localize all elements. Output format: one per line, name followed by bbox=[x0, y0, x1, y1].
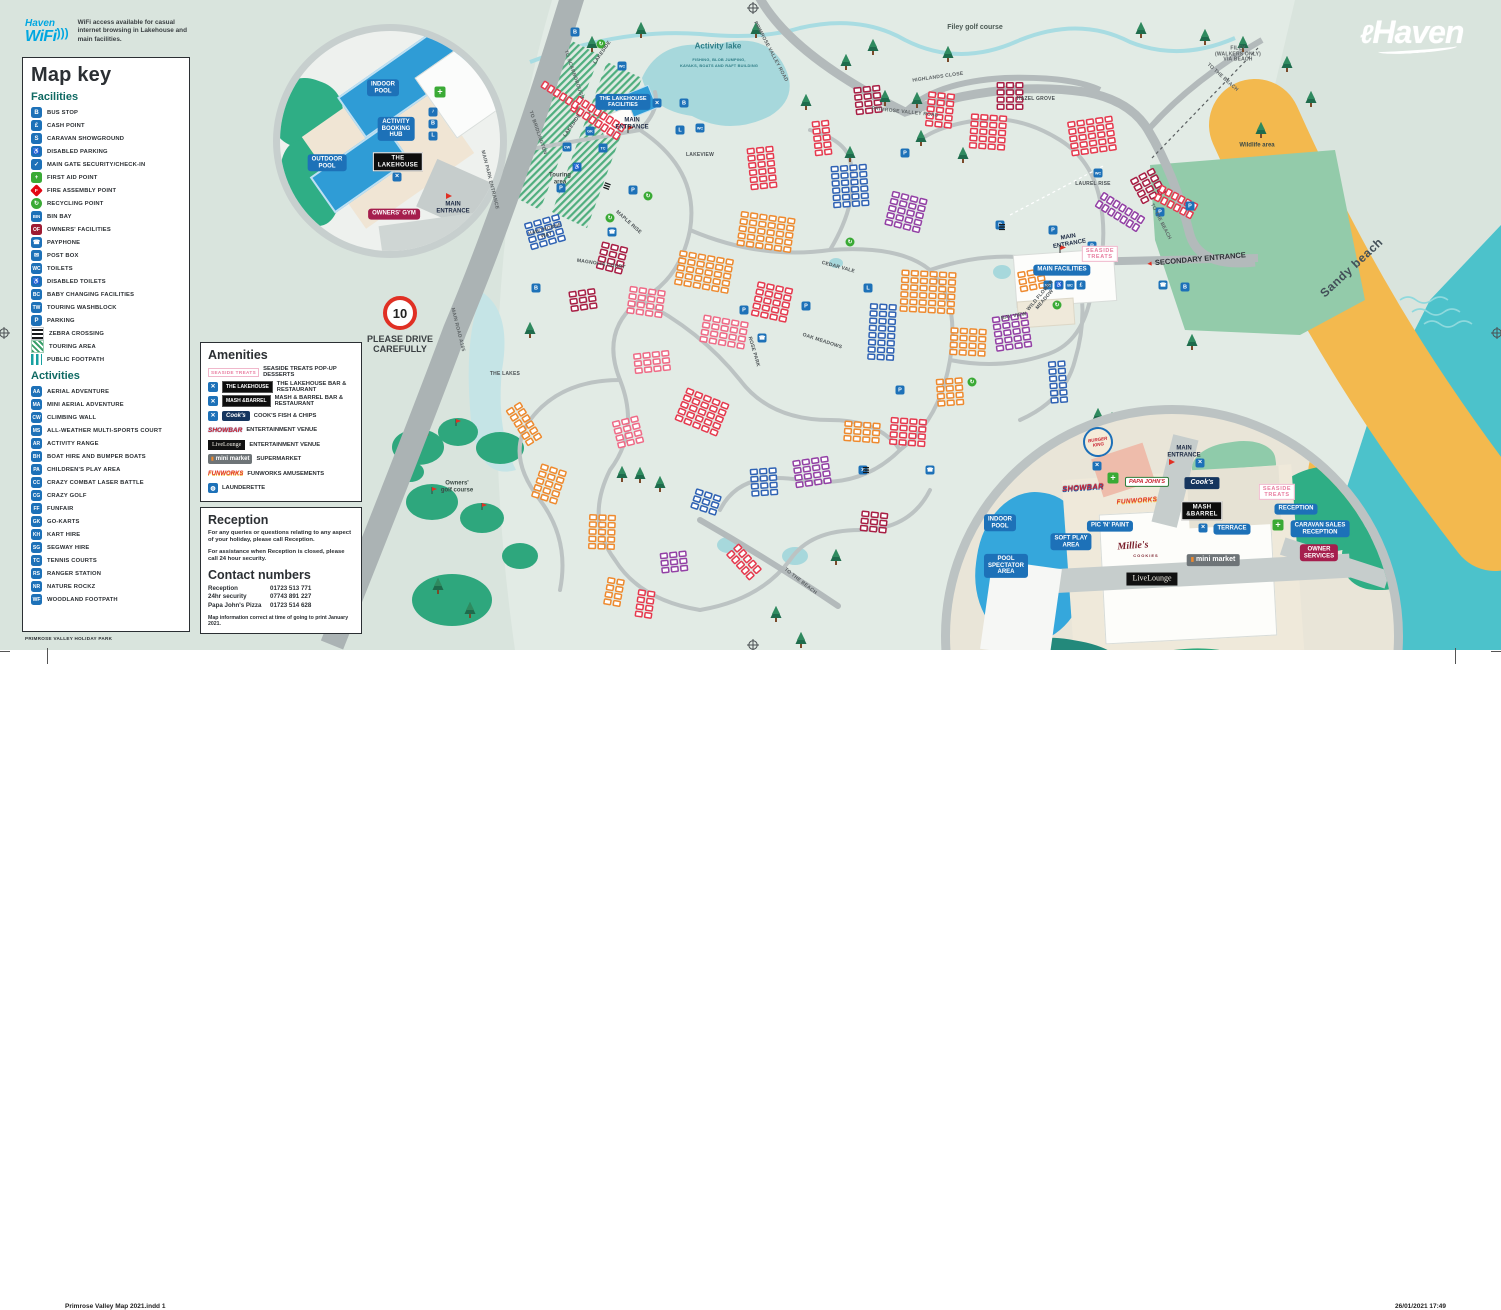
tree-icon bbox=[621, 478, 623, 482]
caravan-plot bbox=[911, 271, 918, 276]
caravan-plot bbox=[862, 200, 869, 205]
owners-facilities-icon: OF bbox=[31, 224, 42, 235]
amenity-item: FUNWORKSFUNWORKS AMUSEMENTS bbox=[208, 467, 354, 482]
caravan-plot bbox=[1050, 376, 1057, 381]
caravan-plot bbox=[889, 312, 896, 317]
caravan-plot bbox=[645, 367, 652, 372]
terrain-pond bbox=[829, 258, 843, 268]
caravan-plot bbox=[534, 485, 542, 492]
caravan-plot bbox=[861, 518, 868, 523]
facility-key-item: ☎PAYPHONE bbox=[31, 236, 181, 249]
caravan-plot bbox=[946, 108, 953, 113]
contact-row: Reception01723 513 771 bbox=[208, 585, 354, 594]
caravan-plot bbox=[960, 343, 967, 348]
caravan-plot bbox=[549, 238, 557, 244]
caravan-plot bbox=[793, 460, 800, 466]
payphone-icon-glyph: ☎ bbox=[33, 239, 40, 246]
caravan-plot bbox=[988, 144, 995, 149]
caravan-plot bbox=[861, 186, 868, 191]
caravan-plot bbox=[1000, 116, 1007, 121]
caravan-plot bbox=[559, 470, 567, 477]
caravan-plot bbox=[596, 263, 604, 269]
caravan-plot bbox=[969, 350, 976, 355]
funfair-icon-glyph: FF bbox=[33, 506, 39, 512]
caravan-plot bbox=[1018, 272, 1025, 278]
caravan-plot bbox=[950, 342, 957, 347]
caravan-plot bbox=[737, 343, 744, 349]
caravan-plot bbox=[1100, 146, 1107, 152]
map-print-note: Map information correct at time of going… bbox=[208, 615, 354, 628]
caravan-plot bbox=[702, 284, 709, 290]
owners-facilities-icon-glyph: OF bbox=[33, 227, 40, 233]
caravan-plot bbox=[770, 482, 777, 487]
caravan-plot bbox=[851, 179, 858, 184]
caravan-plot bbox=[614, 428, 622, 434]
caravan-plot bbox=[663, 365, 670, 370]
caravan-plot bbox=[843, 202, 850, 207]
caravan-plot bbox=[590, 303, 597, 309]
badge-glyph: P bbox=[1090, 243, 1094, 249]
badge-glyph: £ bbox=[1079, 282, 1082, 288]
caravan-plot bbox=[770, 314, 777, 320]
caravan-plot bbox=[1050, 383, 1057, 388]
activity-key-item: RSRANGER STATION bbox=[31, 567, 181, 580]
activity-key-item: TCTENNIS COURTS bbox=[31, 554, 181, 567]
bin-bay-icon-glyph: BIN bbox=[33, 214, 40, 219]
caravan-plot bbox=[737, 240, 744, 246]
caravan-plot bbox=[1090, 147, 1097, 153]
tree-icon bbox=[640, 34, 642, 38]
amenity-label: SUPERMARKET bbox=[256, 456, 301, 462]
funfair-icon: FF bbox=[31, 503, 42, 514]
caravan-plot bbox=[980, 122, 987, 127]
caravan-plot bbox=[630, 287, 637, 293]
crop-mark bbox=[1491, 651, 1501, 652]
key-item-label: FUNFAIR bbox=[47, 506, 74, 512]
caravan-plot bbox=[969, 336, 976, 341]
caravan-plot bbox=[901, 285, 908, 290]
livelounge-logo: LiveLounge bbox=[208, 440, 245, 450]
caravan-plot bbox=[701, 329, 708, 335]
caravan-plot bbox=[702, 322, 709, 328]
activity-key-item: PACHILDREN'S PLAY AREA bbox=[31, 463, 181, 476]
caravan-plot bbox=[598, 537, 605, 542]
caravan-plot bbox=[863, 87, 870, 92]
inset-lakehouse-detail bbox=[273, 24, 507, 258]
caravan-plot bbox=[880, 520, 887, 525]
caravan-plot bbox=[796, 482, 803, 488]
badge-glyph: CW bbox=[564, 145, 571, 149]
facility-key-item: FFIRE ASSEMBLY POINT bbox=[31, 184, 181, 197]
tree-icon bbox=[1204, 41, 1206, 45]
caravan-plot bbox=[671, 566, 678, 571]
contact-row: 24hr security07743 891 227 bbox=[208, 593, 354, 602]
tree-icon bbox=[845, 66, 847, 70]
caravan-plot bbox=[873, 423, 880, 428]
facility-key-item: +FIRST AID POINT bbox=[31, 171, 181, 184]
caravan-plot bbox=[675, 279, 682, 285]
caravan-plot bbox=[556, 477, 564, 484]
caravan-plot bbox=[774, 245, 781, 251]
caravan-plot bbox=[1020, 286, 1027, 292]
caravan-plot-cluster bbox=[926, 92, 955, 128]
baby-changing-icon: BC bbox=[31, 289, 42, 300]
caravan-plot bbox=[768, 168, 775, 173]
caravan-plot bbox=[767, 161, 774, 166]
key-item-label: TOILETS bbox=[47, 266, 73, 272]
caravan-plot bbox=[689, 252, 696, 258]
cooks-logo: Cook's bbox=[222, 411, 250, 421]
lakehouse-logo: THE LAKEHOUSE bbox=[222, 381, 273, 393]
first-aid-icon-glyph: + bbox=[35, 175, 39, 181]
caravan-plot bbox=[970, 329, 977, 334]
caravan-plot bbox=[865, 101, 872, 106]
caravan-plot bbox=[938, 401, 945, 406]
caravan-plot bbox=[788, 218, 795, 224]
caravan-plot bbox=[868, 347, 875, 352]
caravan-plot-cluster bbox=[860, 511, 887, 533]
caravan-plot bbox=[981, 115, 988, 120]
caravan-plot bbox=[1098, 132, 1105, 138]
caravan-plot bbox=[527, 229, 535, 235]
badge-glyph: ↻ bbox=[608, 214, 613, 221]
caravan-plot bbox=[930, 279, 937, 284]
disabled-toilets-icon-glyph: ♿ bbox=[33, 278, 40, 285]
post-box-icon: ✉ bbox=[31, 250, 42, 261]
caravan-plot bbox=[997, 97, 1004, 102]
caravan-plot bbox=[890, 439, 897, 444]
caravan-plot bbox=[637, 302, 644, 308]
caravan-plot bbox=[870, 519, 877, 524]
caravan-plot bbox=[869, 340, 876, 345]
caravan-plot bbox=[636, 437, 644, 443]
caravan-plot bbox=[625, 432, 633, 438]
key-item-label: MINI AERIAL ADVENTURE bbox=[47, 402, 124, 408]
caravan-plot bbox=[841, 173, 848, 178]
caravan-plot bbox=[607, 258, 615, 264]
caravan-plot bbox=[971, 121, 978, 126]
caravan-plot bbox=[856, 109, 863, 114]
caravan-plot bbox=[649, 289, 656, 295]
caravan-plot bbox=[843, 194, 850, 199]
amenity-item: ◍LAUNDERETTE bbox=[208, 481, 354, 496]
caravan-plot bbox=[957, 399, 964, 404]
caravan-plot bbox=[1016, 104, 1023, 109]
caravan-plot bbox=[813, 465, 820, 471]
zebra-stripe bbox=[999, 229, 1005, 230]
caravan-plot bbox=[769, 216, 776, 222]
caravan-plot-cluster bbox=[569, 289, 597, 312]
caravan-plot bbox=[896, 215, 904, 221]
caravan-plot bbox=[770, 475, 777, 480]
caravan-plot bbox=[885, 219, 893, 225]
dining-icon: ✕ bbox=[208, 411, 218, 421]
caravan-plot bbox=[536, 478, 544, 485]
caravan-plot bbox=[900, 433, 907, 438]
crazy-golf-icon: CG bbox=[31, 490, 42, 501]
caravan-plot bbox=[834, 202, 841, 207]
badge-glyph: P bbox=[631, 187, 635, 193]
map-key-panel: Map key Facilities BBUS STOP£CASH POINTS… bbox=[22, 57, 190, 632]
caravan-plot bbox=[723, 273, 730, 279]
caravan-plot bbox=[759, 221, 766, 227]
caravan-plot bbox=[636, 309, 643, 315]
caravan-plot bbox=[863, 437, 870, 442]
caravan-plot bbox=[757, 147, 764, 152]
disabled-parking-icon: ♿ bbox=[31, 146, 42, 157]
caravan-plot bbox=[845, 421, 852, 426]
tree-icon bbox=[1242, 48, 1244, 52]
activity-key-item: ARACTIVITY RANGE bbox=[31, 437, 181, 450]
zebra-stripe bbox=[999, 224, 1005, 225]
key-item-label: WOODLAND FOOTPATH bbox=[47, 597, 118, 603]
caravan-plot bbox=[767, 284, 774, 290]
caravan-plot bbox=[749, 170, 756, 175]
caravan-plot bbox=[815, 143, 822, 148]
caravan-plot bbox=[960, 328, 967, 333]
activities-section-title: Activities bbox=[31, 370, 181, 382]
caravan-plot bbox=[1011, 314, 1018, 320]
caravan-plot bbox=[538, 234, 546, 240]
caravan-plot bbox=[1072, 150, 1079, 156]
caravan-plot bbox=[1068, 122, 1075, 128]
caravan-plot bbox=[892, 191, 900, 197]
caravan-plot bbox=[698, 254, 705, 260]
zebra-stripe bbox=[999, 226, 1005, 227]
amenity-item: ✕THE LAKEHOUSETHE LAKEHOUSE BAR & RESTAU… bbox=[208, 380, 354, 395]
caravan-plot bbox=[844, 428, 851, 433]
post-box-icon-glyph: ✉ bbox=[34, 252, 39, 259]
facility-key-item: ♿DISABLED PARKING bbox=[31, 145, 181, 158]
caravan-plot bbox=[782, 302, 789, 308]
caravan-plot bbox=[873, 430, 880, 435]
nature-rockz-icon: NR bbox=[31, 581, 42, 592]
badge-glyph: ✕ bbox=[655, 99, 660, 106]
caravan-plot bbox=[1030, 284, 1037, 290]
caravan-plot bbox=[760, 183, 767, 188]
caravan-plot bbox=[614, 593, 621, 599]
caravan-plot bbox=[879, 319, 886, 324]
zebra-crossing-icon bbox=[31, 327, 44, 340]
caravan-plot bbox=[1060, 390, 1067, 395]
badge-glyph: BC bbox=[1067, 283, 1073, 287]
caravan-plot bbox=[714, 272, 721, 278]
caravan-plot bbox=[635, 368, 642, 373]
key-item-label: KART HIRE bbox=[47, 532, 80, 538]
caravan-plot bbox=[914, 219, 922, 225]
caravan-plot bbox=[803, 466, 810, 472]
caravan-plot bbox=[761, 483, 768, 488]
wifi-logo-wifi: WiFi bbox=[25, 28, 57, 45]
caravan-plot bbox=[813, 129, 820, 134]
kart-hire-icon-glyph: KH bbox=[33, 532, 40, 538]
caravan-plot bbox=[978, 344, 985, 349]
caravan-plot bbox=[606, 585, 613, 591]
amenity-item: mini marketSUPERMARKET bbox=[208, 452, 354, 467]
boat-hire-icon: BH bbox=[31, 451, 42, 462]
caravan-plot bbox=[629, 294, 636, 300]
caravan-plot bbox=[1079, 134, 1086, 140]
caravan-plot bbox=[702, 499, 710, 506]
touring-washblock-icon-glyph: TW bbox=[33, 305, 41, 311]
caravan-plot bbox=[1049, 362, 1056, 367]
caravan-plot bbox=[861, 193, 868, 198]
amenity-label: ENTERTAINMENT VENUE bbox=[249, 442, 320, 448]
reception-panel: Reception For any queries or questions r… bbox=[200, 507, 362, 634]
caravan-plot bbox=[871, 304, 878, 309]
caravan-plot bbox=[590, 515, 597, 520]
caravan-plot bbox=[638, 295, 645, 301]
key-item-label: MAIN GATE SECURITY/CHECK-IN bbox=[47, 162, 145, 168]
badge-glyph: WC bbox=[1045, 283, 1052, 287]
caravan-plot bbox=[681, 565, 688, 570]
badge-glyph: ♿ bbox=[1056, 281, 1063, 288]
caravan-plot bbox=[860, 172, 867, 177]
caravan-plot bbox=[905, 217, 913, 223]
caravan-plot bbox=[907, 210, 915, 216]
caravan-plot bbox=[525, 222, 533, 228]
caravan-plot bbox=[616, 261, 624, 267]
caravan-plot bbox=[918, 205, 926, 211]
climbing-wall-icon-glyph: CW bbox=[32, 415, 40, 421]
showbar-logo: SHOWBAR bbox=[208, 427, 242, 434]
caravan-plot bbox=[947, 101, 954, 106]
caravan-plot bbox=[822, 120, 829, 125]
activities-list: AAAERIAL ADVENTUREMAMINI AERIAL ADVENTUR… bbox=[31, 385, 181, 606]
caravan-plot bbox=[910, 292, 917, 297]
caravan-plot bbox=[1060, 397, 1067, 402]
caravan-plot bbox=[863, 430, 870, 435]
caravan-plot bbox=[757, 282, 764, 288]
caravan-plot bbox=[900, 425, 907, 430]
caravan-showground-icon-glyph: S bbox=[34, 136, 38, 142]
caravan-plot bbox=[919, 198, 927, 204]
caravan-plot bbox=[887, 341, 894, 346]
caravan-plot bbox=[879, 326, 886, 331]
caravan-plot bbox=[920, 293, 927, 298]
caravan-plot bbox=[552, 215, 560, 221]
caravan-plot bbox=[779, 316, 786, 322]
ranger-station-icon: RS bbox=[31, 568, 42, 579]
caravan-plot bbox=[643, 353, 650, 358]
caravan-plot bbox=[579, 297, 586, 303]
tree-icon bbox=[1260, 134, 1262, 138]
caravan-plot bbox=[655, 312, 662, 318]
tree-icon bbox=[849, 158, 851, 162]
amenity-item: ✕MASH &BARRELMASH & BARREL BAR & RESTAUR… bbox=[208, 394, 354, 409]
caravan-plot bbox=[853, 436, 860, 441]
print-filename: Primrose Valley Map 2021.indd 1 bbox=[65, 1303, 165, 1310]
childrens-play-area-icon: PA bbox=[31, 464, 42, 475]
facility-key-item: WCTOILETS bbox=[31, 262, 181, 275]
caravan-plot bbox=[999, 130, 1006, 135]
caravan-plot bbox=[794, 468, 801, 474]
caravan-plot bbox=[889, 319, 896, 324]
caravan-plot bbox=[859, 164, 866, 169]
key-item-label: FIRST AID POINT bbox=[47, 175, 97, 181]
caravan-plot bbox=[832, 174, 839, 179]
caravan-plot bbox=[766, 237, 773, 243]
caravan-plot bbox=[1097, 125, 1104, 131]
caravan-plot bbox=[709, 508, 717, 515]
caravan-plot bbox=[919, 300, 926, 305]
key-item-label: TOURING WASHBLOCK bbox=[47, 305, 117, 311]
inset-spectator-deck bbox=[980, 560, 1062, 650]
zebra-crossing-icon bbox=[999, 224, 1005, 230]
caravan-plot bbox=[1012, 321, 1019, 327]
caravan-plot bbox=[658, 290, 665, 296]
caravan-plot bbox=[1081, 149, 1088, 155]
key-item-label: BUS STOP bbox=[47, 110, 78, 116]
caravan-plot bbox=[662, 358, 669, 363]
caravan-plot bbox=[951, 335, 958, 340]
caravan-plot bbox=[707, 256, 714, 262]
caravan-plot bbox=[1016, 97, 1023, 102]
caravan-plot bbox=[532, 491, 540, 498]
caravan-plot bbox=[786, 232, 793, 238]
caravan-plot bbox=[775, 238, 782, 244]
caravan-plot bbox=[608, 578, 615, 584]
toilets-icon: WC bbox=[31, 263, 42, 274]
caravan-plot bbox=[662, 567, 669, 572]
tree-icon bbox=[835, 561, 837, 565]
caravan-plot bbox=[765, 291, 772, 297]
caravan-plot bbox=[757, 236, 764, 242]
contact-numbers-title: Contact numbers bbox=[208, 568, 354, 582]
caravan-plot bbox=[1096, 118, 1103, 124]
caravan-plot bbox=[936, 114, 943, 119]
key-item-label: PUBLIC FOOTPATH bbox=[47, 357, 104, 363]
zebra-stripe bbox=[863, 467, 869, 468]
caravan-plot bbox=[656, 305, 663, 311]
caravan-plot bbox=[606, 265, 614, 271]
caravan-plot bbox=[1107, 131, 1114, 137]
badge-glyph: B bbox=[682, 100, 686, 106]
caravan-plot bbox=[936, 379, 943, 384]
inset-annex-building bbox=[1187, 466, 1282, 529]
badge-glyph: ☎ bbox=[759, 334, 767, 341]
crop-mark bbox=[1455, 648, 1456, 664]
key-item-label: PARKING bbox=[47, 318, 75, 324]
key-item-label: CASH POINT bbox=[47, 123, 85, 129]
caravan-plot bbox=[997, 104, 1004, 109]
caravan-plot bbox=[747, 234, 754, 240]
caravan-plot bbox=[612, 421, 620, 427]
caravan-plot bbox=[627, 439, 635, 445]
caravan-plot bbox=[693, 282, 700, 288]
caravan-plot bbox=[1105, 116, 1112, 122]
caravan-plot bbox=[929, 286, 936, 291]
parking-icon-glyph: P bbox=[34, 318, 38, 324]
caravan-plot bbox=[833, 188, 840, 193]
caravan-plot bbox=[768, 223, 775, 229]
amenity-label: LAUNDERETTE bbox=[222, 485, 265, 491]
caravan-plot bbox=[751, 476, 758, 481]
caravan-plot bbox=[704, 492, 712, 499]
activity-key-item: AAAERIAL ADVENTURE bbox=[31, 385, 181, 398]
caravan-plot bbox=[700, 506, 708, 513]
caravan-plot bbox=[997, 90, 1004, 95]
caravan-plot bbox=[855, 102, 862, 107]
amenities-list: SEASIDE TREATSSEASIDE TREATS POP-UP DESS… bbox=[208, 365, 354, 496]
caravan-plot bbox=[880, 304, 887, 309]
caravan-plot bbox=[1069, 129, 1076, 135]
caravan-plot bbox=[804, 473, 811, 479]
contact-number: 07743 891 227 bbox=[270, 593, 311, 602]
caravan-plot bbox=[1007, 97, 1014, 102]
caravan-plot bbox=[998, 138, 1005, 143]
caravan-plot bbox=[908, 440, 915, 445]
